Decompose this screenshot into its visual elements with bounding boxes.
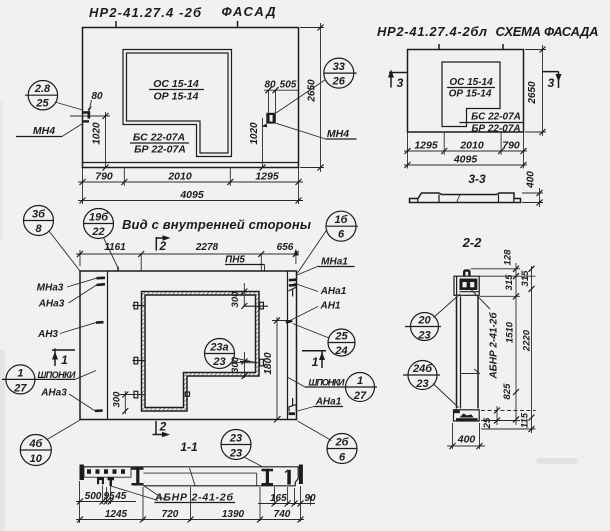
svg-text:315: 315 xyxy=(520,270,531,287)
svg-text:АНа3: АНа3 xyxy=(40,388,67,399)
svg-text:1: 1 xyxy=(17,367,23,379)
svg-text:ОС 15-14: ОС 15-14 xyxy=(449,77,493,88)
svg-text:80: 80 xyxy=(91,91,103,102)
svg-text:1: 1 xyxy=(357,375,363,387)
svg-text:23: 23 xyxy=(229,448,242,460)
svg-text:2650: 2650 xyxy=(527,81,538,105)
svg-text:3: 3 xyxy=(548,76,555,90)
svg-text:2: 2 xyxy=(159,420,167,434)
svg-text:6: 6 xyxy=(339,452,346,464)
svg-text:АНа1: АНа1 xyxy=(320,286,347,297)
svg-text:МНа3: МНа3 xyxy=(37,283,64,294)
svg-text:АН1: АН1 xyxy=(319,301,340,312)
svg-text:740: 740 xyxy=(274,509,291,520)
svg-text:22: 22 xyxy=(91,226,104,238)
svg-text:1390: 1390 xyxy=(222,509,245,520)
svg-text:МН4: МН4 xyxy=(327,128,349,140)
svg-text:МНа1: МНа1 xyxy=(321,257,348,268)
svg-text:20: 20 xyxy=(417,315,431,327)
svg-text:656: 656 xyxy=(277,242,294,253)
svg-text:505: 505 xyxy=(280,80,297,91)
svg-text:1161: 1161 xyxy=(104,242,126,253)
svg-text:4б: 4б xyxy=(28,438,43,450)
svg-text:300: 300 xyxy=(230,291,241,308)
svg-text:1: 1 xyxy=(61,353,68,367)
svg-text:115: 115 xyxy=(520,412,531,428)
svg-text:1510: 1510 xyxy=(505,321,516,343)
svg-text:6: 6 xyxy=(338,229,345,241)
svg-text:23: 23 xyxy=(417,330,430,342)
svg-text:2650: 2650 xyxy=(307,79,318,103)
svg-text:1295: 1295 xyxy=(414,140,438,152)
svg-text:2.8: 2.8 xyxy=(34,83,51,95)
svg-text:10: 10 xyxy=(30,453,43,465)
svg-text:400: 400 xyxy=(526,171,537,189)
svg-text:НР2-41.27.4-2бл: НР2-41.27.4-2бл xyxy=(377,24,487,39)
svg-text:24б: 24б xyxy=(412,363,433,375)
svg-text:25: 25 xyxy=(334,331,348,343)
svg-text:АН3: АН3 xyxy=(37,329,58,340)
svg-text:315: 315 xyxy=(504,274,515,291)
svg-text:2220: 2220 xyxy=(522,329,533,352)
svg-text:90: 90 xyxy=(304,493,316,504)
svg-text:300: 300 xyxy=(111,391,122,408)
svg-text:23: 23 xyxy=(229,433,242,445)
svg-text:1б: 1б xyxy=(335,214,349,226)
svg-text:4095: 4095 xyxy=(179,189,204,201)
svg-text:2010: 2010 xyxy=(167,171,192,183)
svg-text:БС 22-07А: БС 22-07А xyxy=(133,132,185,144)
svg-text:500: 500 xyxy=(85,491,102,502)
svg-text:БС 22-07А: БС 22-07А xyxy=(471,112,521,123)
svg-text:ШПОНКИ: ШПОНКИ xyxy=(309,378,346,388)
svg-text:ФАСАД: ФАСАД xyxy=(222,4,279,19)
svg-text:825: 825 xyxy=(502,383,513,400)
svg-text:2б: 2б xyxy=(335,437,350,449)
svg-text:БР 22-07А: БР 22-07А xyxy=(134,144,186,156)
svg-text:33: 33 xyxy=(333,61,345,73)
svg-text:2: 2 xyxy=(158,239,166,253)
svg-text:165: 165 xyxy=(270,493,287,504)
svg-text:3б: 3б xyxy=(32,209,46,221)
svg-text:ПН5: ПН5 xyxy=(225,255,245,266)
svg-text:АБНР 2-41-2б: АБНР 2-41-2б xyxy=(154,492,233,504)
svg-text:1800: 1800 xyxy=(263,352,274,375)
svg-text:400: 400 xyxy=(457,434,476,446)
svg-text:АНа3: АНа3 xyxy=(38,299,65,310)
svg-text:790: 790 xyxy=(502,140,520,152)
svg-text:1020: 1020 xyxy=(92,122,103,145)
svg-text:2-2: 2-2 xyxy=(462,235,483,250)
svg-text:БР 22-07А: БР 22-07А xyxy=(471,124,520,135)
svg-text:2010: 2010 xyxy=(459,140,484,152)
svg-text:ОС 15-14: ОС 15-14 xyxy=(153,78,199,90)
svg-text:23: 23 xyxy=(415,378,428,390)
svg-text:1: 1 xyxy=(312,355,319,369)
svg-text:4095: 4095 xyxy=(453,154,478,166)
svg-text:27: 27 xyxy=(13,382,27,394)
svg-text:790: 790 xyxy=(95,171,113,183)
svg-text:3: 3 xyxy=(397,76,404,90)
svg-text:НР2-41.27.4 -2б: НР2-41.27.4 -2б xyxy=(89,5,202,20)
svg-text:23: 23 xyxy=(212,356,225,368)
svg-text:3-3: 3-3 xyxy=(468,172,486,186)
svg-text:23а: 23а xyxy=(209,342,228,354)
svg-text:ОР 15-14: ОР 15-14 xyxy=(154,91,199,103)
svg-text:1245: 1245 xyxy=(105,509,128,520)
svg-text:МН4: МН4 xyxy=(33,125,55,137)
svg-text:25: 25 xyxy=(35,98,49,110)
svg-text:8: 8 xyxy=(35,223,42,235)
svg-text:2278: 2278 xyxy=(195,242,219,253)
svg-text:720: 720 xyxy=(162,509,179,520)
svg-text:24: 24 xyxy=(334,345,347,357)
svg-text:25: 25 xyxy=(482,417,493,429)
svg-text:19б: 19б xyxy=(89,212,109,224)
svg-text:1020: 1020 xyxy=(249,122,260,145)
svg-text:ШПОНКИ: ШПОНКИ xyxy=(38,370,77,380)
svg-text:1295: 1295 xyxy=(255,171,279,183)
svg-text:27: 27 xyxy=(353,390,367,402)
svg-text:АБНР 2-41-2б: АБНР 2-41-2б xyxy=(488,312,500,380)
svg-text:95: 95 xyxy=(103,491,115,502)
svg-text:128: 128 xyxy=(503,249,514,266)
svg-text:26: 26 xyxy=(332,76,346,88)
svg-text:ОР 15-14: ОР 15-14 xyxy=(449,89,492,100)
svg-text:1-1: 1-1 xyxy=(180,440,198,454)
svg-text:Вид с внутренней стороны: Вид с внутренней стороны xyxy=(122,217,311,232)
svg-text:СХЕМА ФАСАДА: СХЕМА ФАСАДА xyxy=(496,24,599,39)
svg-text:АНа1: АНа1 xyxy=(315,397,342,408)
svg-text:45: 45 xyxy=(114,491,127,502)
